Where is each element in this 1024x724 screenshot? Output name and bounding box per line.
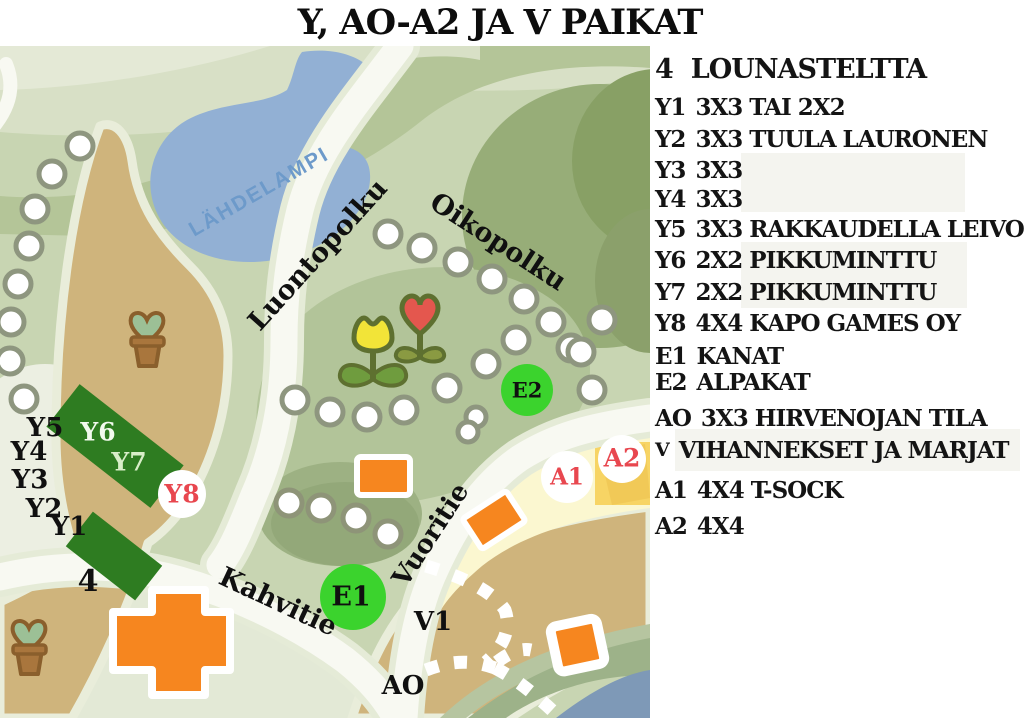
legend-item-desc: 4X4 <box>697 513 744 540</box>
legend-item-code: A1 <box>655 477 687 504</box>
legend-item-code: Y6 <box>655 247 685 274</box>
legend-item: VVIHANNEKSET JA MARJAT <box>655 436 1009 465</box>
event-map: LÄHDELAMPI Luontopolku Oikopolku Vuoriti… <box>0 46 650 718</box>
legend-item-desc: 3X3 TAI 2X2 <box>695 94 844 121</box>
legend-item-code: E2 <box>655 369 687 396</box>
legend-item-desc: ALPAKAT <box>697 369 810 396</box>
legend-item-code: AO <box>655 405 691 432</box>
legend-item-code: 4 <box>655 54 673 85</box>
legend-item: AO3X3 HIRVENOJAN TILA <box>655 405 987 433</box>
page-title: Y, AO-A2 JA V PAIKAT <box>0 2 1000 43</box>
legend-item-desc: 3X3 <box>695 186 742 213</box>
building-diamond <box>550 618 606 673</box>
legend-item-desc: 2X2 PIKKUMINTTU <box>695 247 936 274</box>
legend-item-desc: 3X3 TUULA LAURONEN <box>695 126 987 153</box>
legend-item: A14X4 T-SOCK <box>655 477 843 505</box>
legend-item-code: V <box>655 439 669 461</box>
legend-item: Y43X3 <box>655 186 742 214</box>
legend-item: Y13X3 TAI 2X2 <box>655 94 845 122</box>
legend-highlight <box>741 153 965 183</box>
legend-item: Y23X3 TUULA LAURONEN <box>655 126 987 154</box>
legend: 4LOUNASTELTTA Y13X3 TAI 2X2 Y23X3 TUULA … <box>655 52 1024 572</box>
building-rect <box>357 457 410 495</box>
legend-item-desc: 4X4 T-SOCK <box>697 477 843 504</box>
marker-label-y8: Y8 <box>164 482 199 507</box>
legend-item-desc: 3X3 RAKKAUDELLA LEIVON <box>695 216 1024 243</box>
legend-item-code: Y1 <box>655 94 685 121</box>
legend-item: Y53X3 RAKKAUDELLA LEIVON <box>655 216 1024 244</box>
legend-item: A24X4 <box>655 513 744 541</box>
legend-item: Y84X4 KAPO GAMES OY <box>655 310 960 338</box>
spot-label-y6: Y6 <box>80 420 115 445</box>
legend-item: E2ALPAKAT <box>655 369 810 397</box>
marker-label-e1: E1 <box>331 584 370 611</box>
legend-item-desc: LOUNASTELTTA <box>691 54 926 85</box>
legend-item: Y33X3 <box>655 157 742 185</box>
legend-item-code: Y8 <box>655 310 685 337</box>
legend-item-code: E1 <box>655 343 687 370</box>
legend-item-desc: 2X2 PIKKUMINTTU <box>695 279 936 306</box>
legend-item-code: Y5 <box>655 216 685 243</box>
legend-item: E1KANAT <box>655 343 783 371</box>
spot-label-y4: Y4 <box>11 439 48 465</box>
legend-item-code: A2 <box>655 513 687 540</box>
marker-label-e2: E2 <box>512 380 543 401</box>
spot-label-4: 4 <box>78 567 99 597</box>
legend-item: Y72X2 PIKKUMINTTU <box>655 279 936 307</box>
marker-label-a1: A1 <box>550 466 584 489</box>
legend-item-desc: 3X3 <box>695 157 742 184</box>
legend-item: 4LOUNASTELTTA <box>655 56 926 84</box>
legend-item-code: Y4 <box>655 186 685 213</box>
legend-item-code: Y2 <box>655 126 685 153</box>
legend-item-code: Y7 <box>655 279 685 306</box>
legend-item-desc: VIHANNEKSET JA MARJAT <box>679 437 1009 464</box>
legend-item-code: Y3 <box>655 157 685 184</box>
spot-label-y1: Y1 <box>51 514 88 540</box>
legend-highlight <box>741 182 965 212</box>
spot-label-y3: Y3 <box>12 467 49 493</box>
legend-item-desc: 3X3 HIRVENOJAN TILA <box>701 405 987 432</box>
legend-item: Y62X2 PIKKUMINTTU <box>655 247 936 275</box>
spot-label-y7: Y7 <box>111 450 146 475</box>
spot-label-ao: AO <box>382 673 425 699</box>
legend-item-desc: 4X4 KAPO GAMES OY <box>695 310 960 337</box>
marker-label-a2: A2 <box>604 446 641 471</box>
legend-item-desc: KANAT <box>697 343 784 370</box>
spot-label-v1: V1 <box>414 609 452 635</box>
